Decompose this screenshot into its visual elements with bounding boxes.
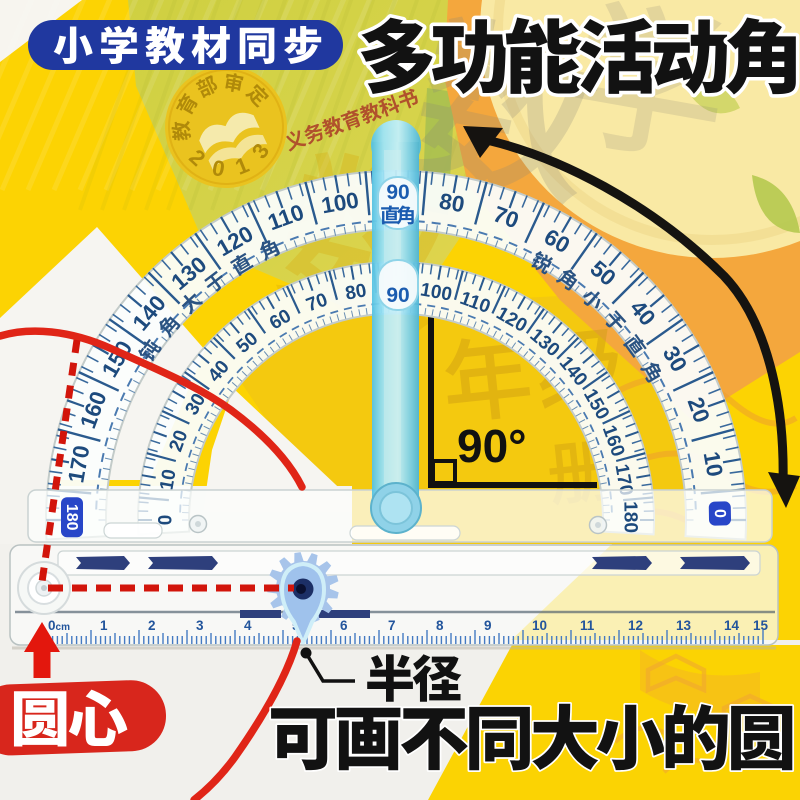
svg-text:6: 6 — [340, 618, 348, 633]
svg-text:12: 12 — [628, 618, 643, 633]
svg-text:80: 80 — [437, 188, 466, 217]
svg-text:8: 8 — [436, 618, 444, 633]
svg-text:90: 90 — [386, 284, 409, 307]
svg-text:7: 7 — [388, 618, 396, 633]
svg-text:11: 11 — [580, 618, 595, 633]
svg-text:13: 13 — [676, 618, 692, 633]
svg-text:10: 10 — [699, 450, 728, 479]
svg-text:4: 4 — [244, 618, 252, 633]
svg-text:2: 2 — [148, 618, 156, 633]
svg-text:0: 0 — [156, 515, 177, 526]
svg-text:10: 10 — [532, 618, 547, 633]
svg-text:10: 10 — [156, 468, 180, 492]
svg-text:1: 1 — [100, 618, 108, 633]
svg-text:14: 14 — [724, 618, 740, 633]
svg-text:0: 0 — [711, 509, 728, 518]
svg-text:15: 15 — [753, 618, 769, 633]
svg-text:9: 9 — [484, 618, 492, 633]
svg-text:80: 80 — [344, 280, 368, 304]
svg-text:3: 3 — [196, 618, 204, 633]
svg-text:180: 180 — [619, 501, 640, 533]
svg-text:90°: 90° — [457, 420, 527, 472]
svg-text:90: 90 — [386, 181, 409, 204]
svg-text:180: 180 — [63, 504, 80, 531]
